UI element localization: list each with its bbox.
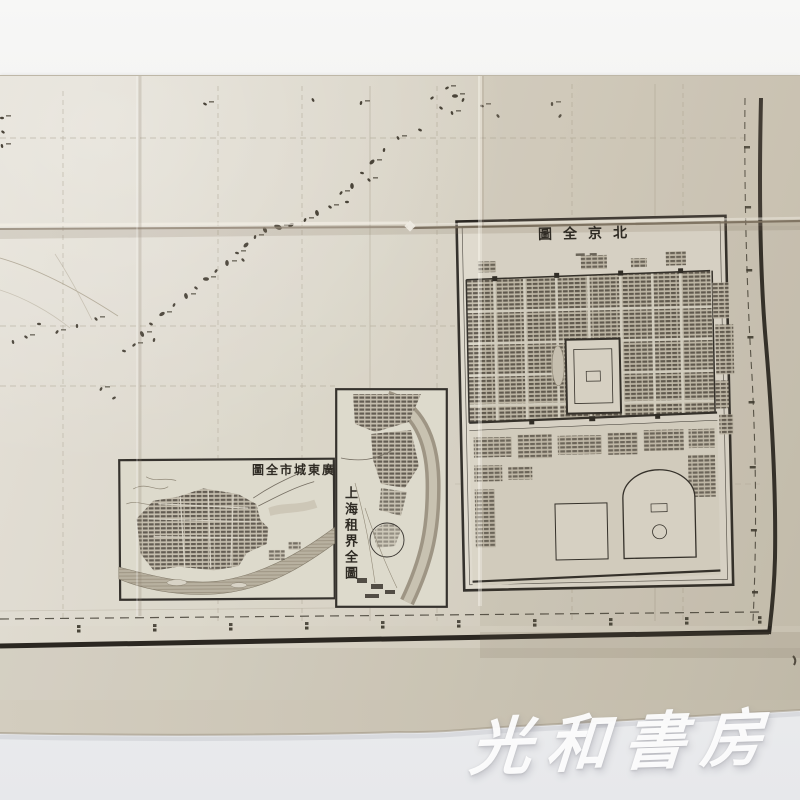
lighting-tints: [0, 76, 800, 701]
map-artwork: [0, 76, 800, 701]
map-paper: 圖全京北 上海租界全圖 圖全市城東廣: [0, 75, 800, 701]
photo-background: 圖全京北 上海租界全圖 圖全市城東廣 光和書房: [0, 0, 800, 800]
bookshop-watermark: 光和書房: [467, 686, 781, 787]
inset-title-canton: 圖全市城東廣: [252, 461, 336, 478]
inset-title-shanghai: 上海租界全圖: [340, 486, 359, 596]
inset-title-beijing: 圖全京北: [538, 222, 638, 244]
